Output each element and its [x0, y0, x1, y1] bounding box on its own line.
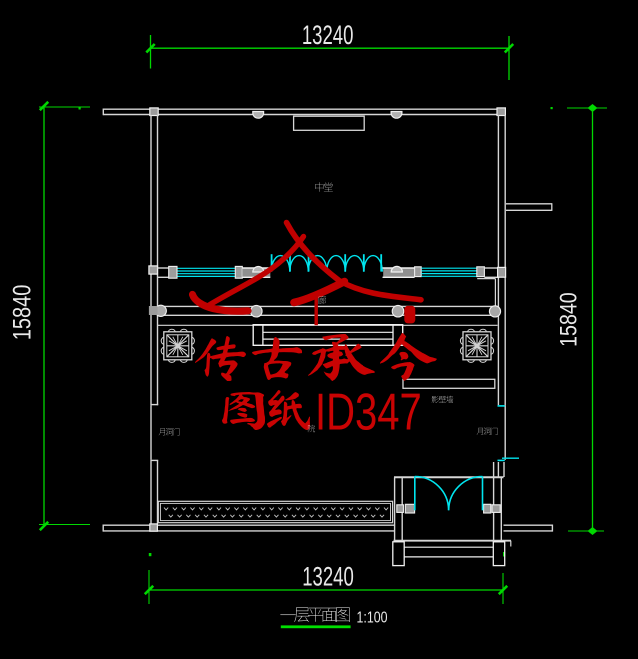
- svg-text:15840: 15840: [8, 285, 36, 341]
- svg-text:13240: 13240: [302, 20, 354, 50]
- svg-text:13240: 13240: [302, 561, 354, 591]
- svg-text:15840: 15840: [554, 292, 582, 346]
- svg-text:ID347: ID347: [315, 382, 422, 440]
- svg-text:1:100: 1:100: [357, 608, 388, 626]
